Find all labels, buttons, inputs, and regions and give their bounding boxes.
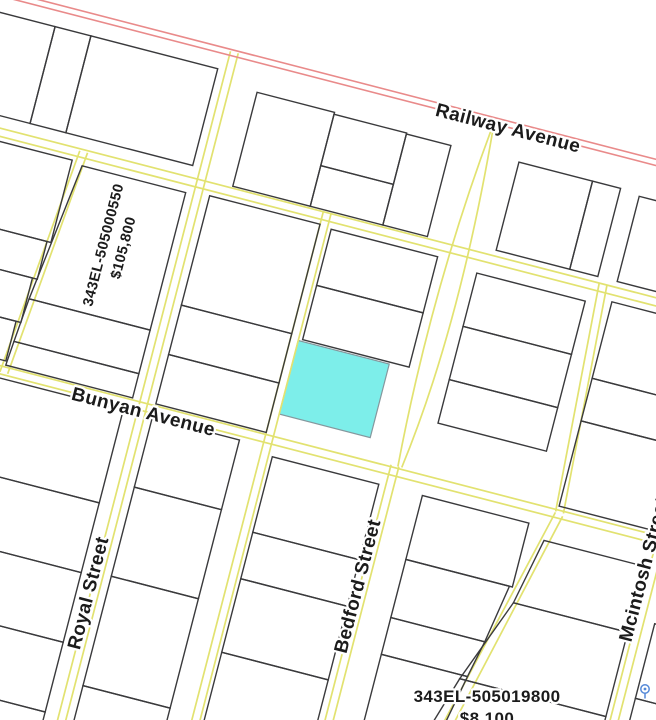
parcel-2-annotation: 343EL-505019800 — [414, 687, 561, 706]
bunyan-avenue-label: Bunyan Avenue — [69, 384, 217, 441]
parcel[interactable] — [581, 378, 656, 446]
parcel[interactable] — [0, 287, 16, 361]
map-canvas[interactable]: Railway Avenue Bunyan Avenue Royal Stree… — [0, 0, 656, 720]
railway-avenue-label: Railway Avenue — [433, 100, 582, 158]
parcel[interactable] — [570, 181, 621, 276]
parcel[interactable] — [592, 302, 656, 404]
parcel[interactable] — [0, 339, 123, 503]
bedford-street-label: Bedford Street — [331, 517, 386, 656]
parcel[interactable] — [83, 576, 198, 708]
parcel[interactable] — [0, 572, 63, 712]
parcel[interactable] — [0, 0, 55, 123]
parcel[interactable] — [0, 243, 32, 323]
parcel[interactable] — [111, 487, 221, 599]
parcel[interactable] — [66, 36, 218, 166]
parcel-2-id: 343EL-505019800 — [414, 687, 561, 706]
parcel[interactable] — [241, 532, 360, 606]
parcel[interactable] — [0, 205, 47, 279]
bedford-street-road — [281, 465, 398, 720]
parcel[interactable] — [169, 305, 292, 383]
parcel[interactable] — [381, 618, 484, 679]
parcel[interactable] — [222, 579, 348, 680]
parcel[interactable] — [406, 496, 529, 587]
unnamed-street-east — [417, 270, 622, 720]
map-pin-icon[interactable] — [641, 685, 649, 699]
parcel[interactable] — [496, 162, 592, 269]
parcel[interactable] — [0, 432, 99, 572]
mcintosh-street-label: Mcintosh Street — [616, 495, 656, 644]
parcel[interactable] — [438, 380, 558, 452]
parcel-2-price: $8,100 — [460, 709, 514, 720]
parcel[interactable] — [321, 114, 407, 184]
parcel[interactable] — [635, 624, 656, 720]
parcel[interactable] — [383, 134, 451, 237]
parcel-1-annotation: 343EL-505000550 $105,800 — [80, 178, 148, 313]
selected-parcel-highlight[interactable] — [279, 341, 389, 438]
parcel[interactable] — [181, 196, 320, 334]
parcel[interactable] — [233, 92, 335, 206]
bedford-street-wedge-road — [393, 119, 502, 471]
parcel[interactable] — [203, 652, 329, 720]
parcel[interactable] — [30, 27, 91, 133]
parcel[interactable] — [0, 641, 45, 720]
parcel[interactable] — [559, 421, 656, 532]
parcel[interactable] — [14, 298, 150, 374]
royal-street-label: Royal Street — [64, 534, 113, 652]
parcel[interactable] — [0, 502, 81, 642]
